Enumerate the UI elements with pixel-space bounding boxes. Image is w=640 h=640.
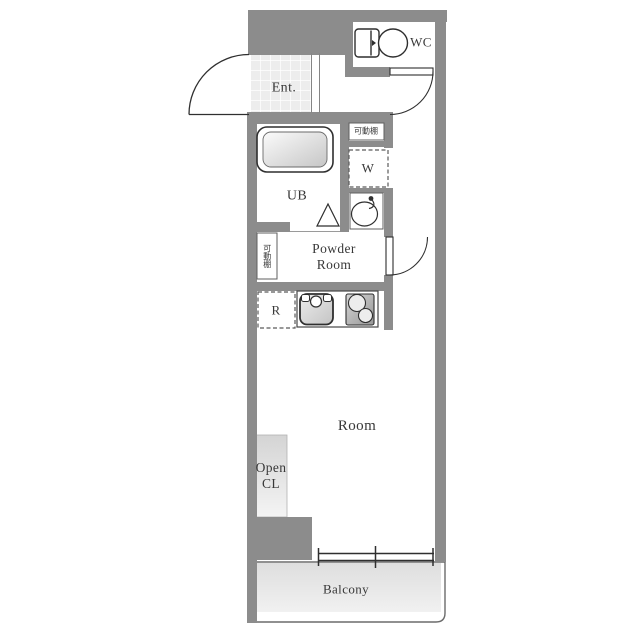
wall-basin-right: [384, 188, 393, 237]
shelf-side-label: 可動棚: [262, 244, 271, 268]
open-closet-label-line1: Open: [256, 460, 287, 476]
wall-powder-kitchen-divider: [247, 282, 393, 291]
wall-wc-left: [345, 10, 353, 77]
room-label: Room: [338, 418, 376, 436]
stove-icon: [346, 294, 374, 325]
entrance-label: Ent.: [272, 81, 297, 98]
balcony-label: Balcony: [323, 581, 369, 596]
toilet-icon: [355, 29, 408, 57]
kitchen-sink-icon: [300, 294, 333, 325]
wall-ub-right: [340, 124, 349, 232]
wall-bottom-left-block: [247, 517, 312, 560]
entrance-door-icon: [189, 55, 249, 115]
wall-hall-ub-divider: [247, 112, 393, 124]
open-closet-label-line2: CL: [256, 476, 287, 492]
powder-room-label: Powder Room: [312, 241, 356, 273]
wall-wc-bottom: [345, 67, 390, 77]
shelf-top-label: 可動棚: [354, 126, 378, 135]
wall-shelf-washer-divider: [349, 141, 393, 147]
folding-door-icon: [290, 204, 340, 232]
wall-top-left-block: [248, 10, 345, 55]
washer-label: W: [362, 160, 375, 175]
floor-plan-drawing: [0, 0, 640, 640]
wash-basin-icon: [350, 193, 383, 229]
wc-label: WC: [410, 34, 432, 49]
wc-door-icon: [390, 68, 433, 115]
bathtub-icon: [257, 127, 333, 172]
entrance-step-lines: [312, 53, 320, 113]
powder-room-label-line1: Powder: [312, 241, 356, 257]
unit-bath-label: UB: [287, 189, 307, 206]
wall-top: [345, 10, 447, 22]
open-closet-label: Open CL: [256, 460, 287, 492]
powder-room-label-line2: Room: [312, 257, 356, 273]
refrigerator-label: R: [271, 302, 280, 317]
fixtures: [189, 29, 434, 568]
wall-right: [435, 10, 446, 562]
powder-room-door-icon: [386, 237, 428, 275]
wall-ub-bottom: [250, 222, 290, 232]
floor-plan: WC Ent. UB W 可動棚 可動棚 Powder Room R Room …: [0, 0, 640, 640]
kitchen-counter: [297, 291, 378, 327]
